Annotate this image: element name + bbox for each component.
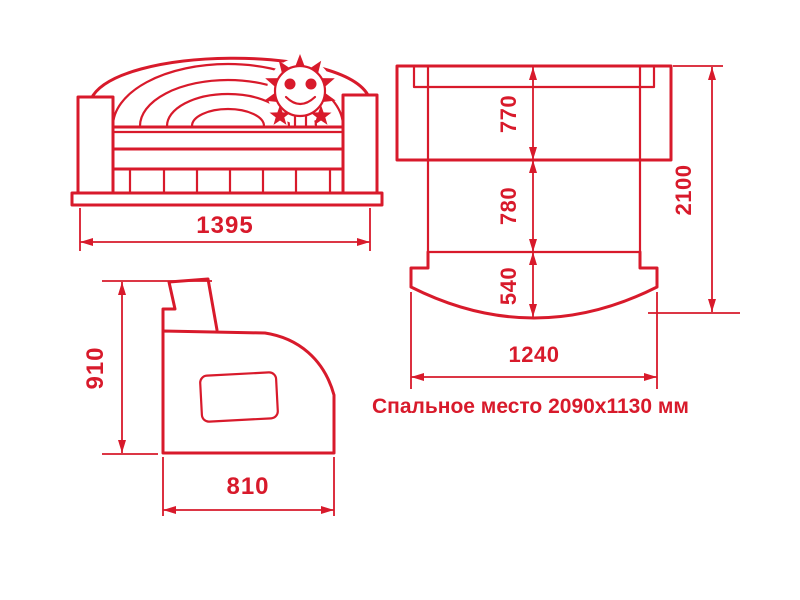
side-backrest: [163, 279, 217, 331]
side-depth-label: 810: [226, 473, 269, 500]
skirt-panels: [130, 169, 330, 193]
side-height-dimension: 910: [82, 281, 212, 454]
base-plinth: [72, 193, 382, 205]
front-view: 1395: [72, 54, 382, 251]
sun-face: [275, 66, 325, 116]
side-view: 910 810: [82, 279, 334, 516]
side-depth-dimension: 810: [163, 457, 334, 516]
total-length-dimension: 2100: [648, 66, 740, 313]
sun-eye-right: [306, 79, 317, 90]
section-chain-dimension: 770 780 540: [496, 67, 537, 317]
section-label-780: 780: [496, 187, 521, 225]
section-label-540: 540: [496, 267, 521, 305]
side-pocket: [200, 372, 278, 422]
section-label-770: 770: [496, 95, 521, 133]
sofa-dimension-drawing: 1395 770 780 540 2100: [0, 0, 800, 600]
top-view: 770 780 540 2100 1240: [397, 66, 740, 389]
drawing-sheet: 1395 770 780 540 2100: [0, 0, 800, 600]
seat-rails: [113, 127, 343, 169]
sun-smiley-icon: [264, 54, 335, 127]
total-length-label: 2100: [671, 165, 696, 216]
top-view-headrest-outline: [397, 66, 671, 160]
front-width-label: 1395: [196, 212, 253, 239]
sun-eye-left: [285, 79, 296, 90]
armrest-right: [343, 95, 377, 193]
armrest-left: [78, 97, 113, 193]
front-width-dimension: 1395: [80, 208, 370, 251]
sleeping-area-caption: Спальное место 2090x1130 мм: [372, 395, 689, 418]
side-height-label: 910: [82, 346, 109, 389]
side-body-profile: [163, 331, 334, 453]
bed-width-label: 1240: [509, 342, 560, 367]
